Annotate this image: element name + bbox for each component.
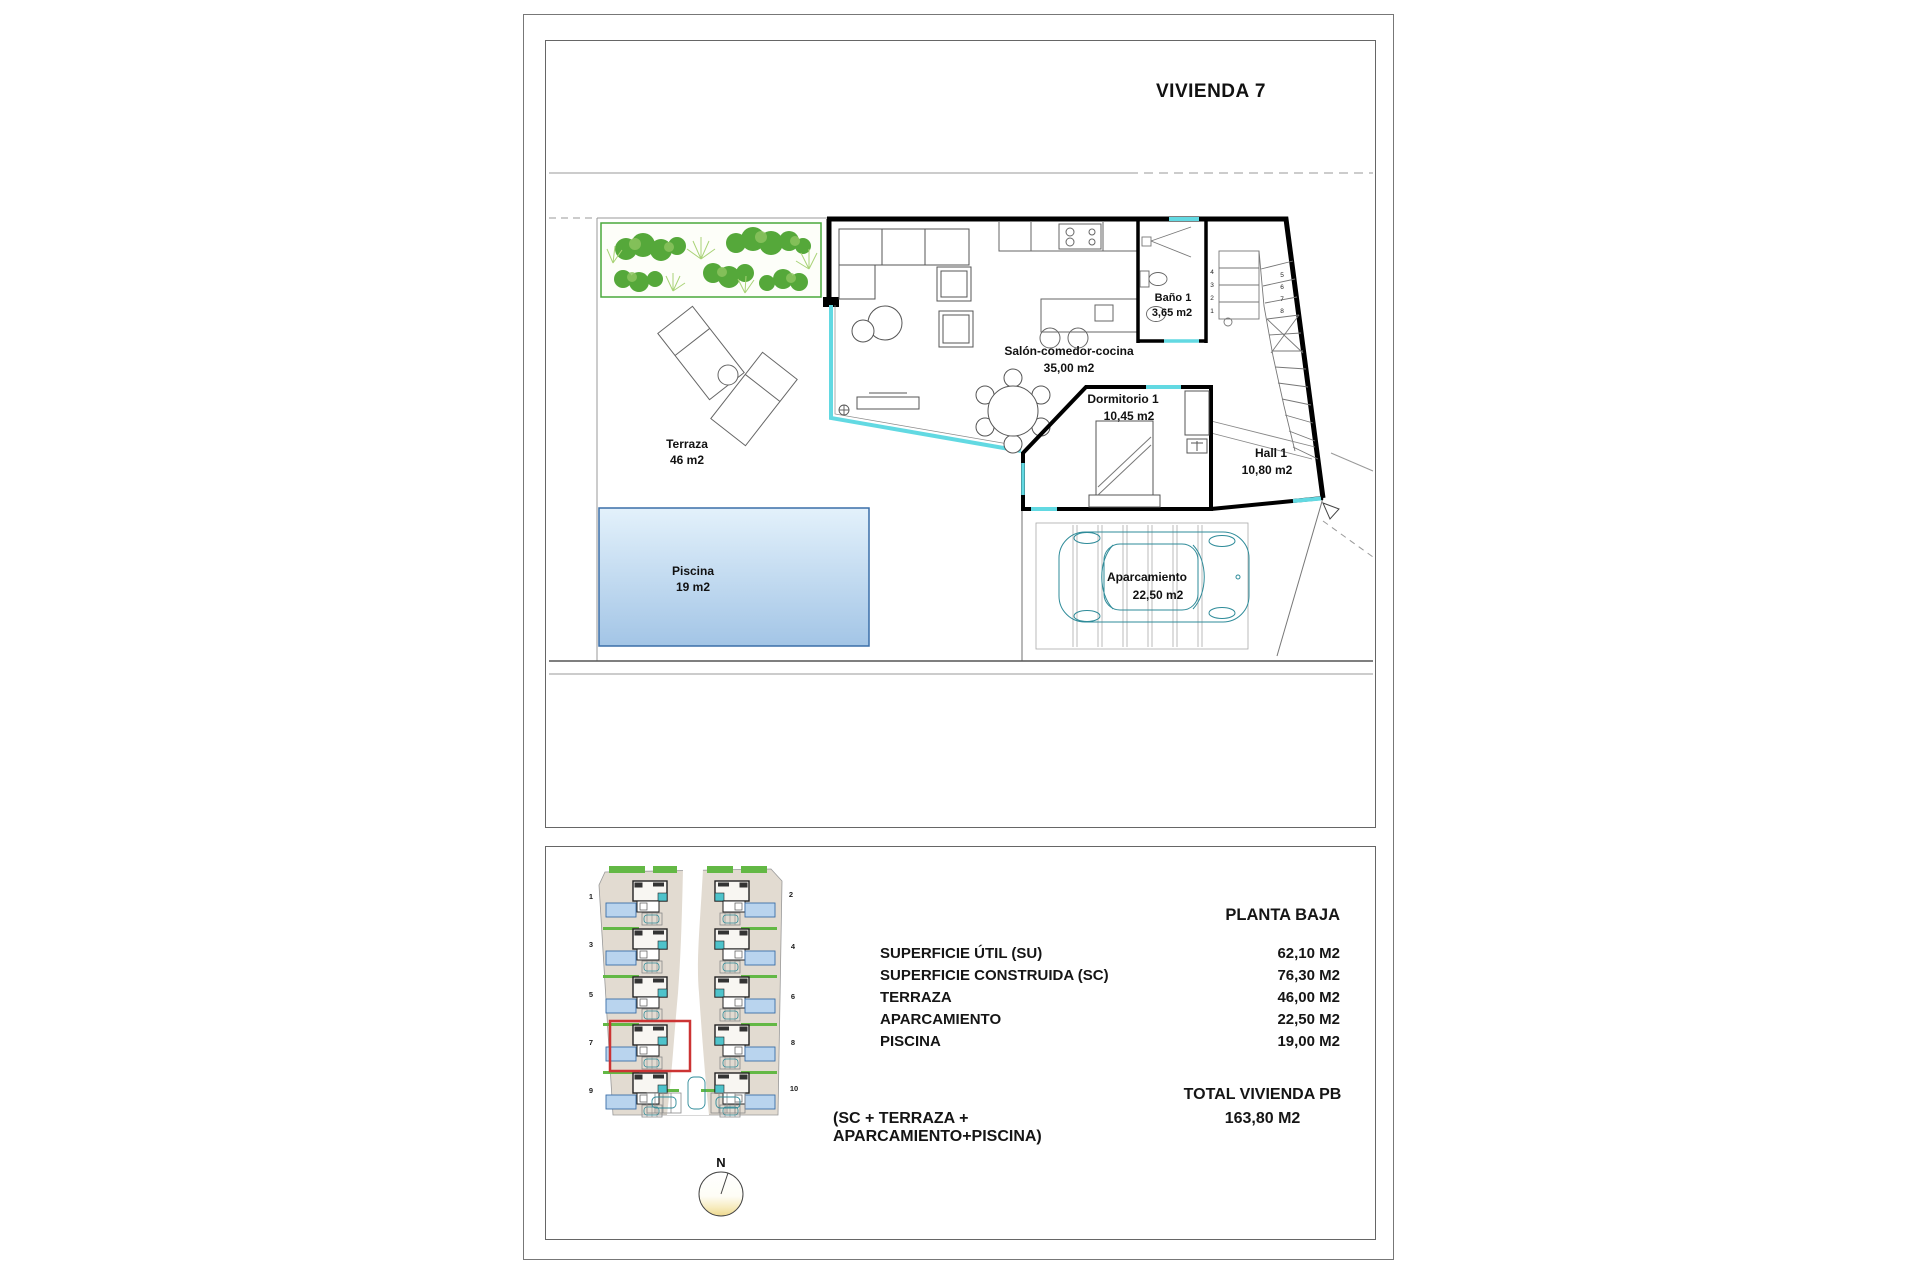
svg-text:4: 4: [791, 942, 796, 951]
svg-text:6: 6: [1280, 284, 1284, 291]
svg-text:4: 4: [1210, 269, 1214, 276]
site-plan: 1 2 3 4 5 6 7 8 9 10: [589, 866, 798, 1117]
row-label: SUPERFICIE CONSTRUIDA (SC): [880, 965, 1109, 987]
plan-sheet: VIVIENDA 7: [0, 0, 1920, 1280]
coffee-table-icon: [852, 306, 902, 342]
sink-icon: [1095, 305, 1113, 321]
floor-plan-panel: VIVIENDA 7: [545, 40, 1376, 828]
table-row: SUPERFICIE ÚTIL (SU) 62,10 M2: [880, 943, 1340, 965]
toilet-icon: [1140, 271, 1167, 287]
row-value: 22,50 M2: [1277, 1009, 1340, 1031]
svg-text:1: 1: [589, 892, 593, 901]
row-label: PISCINA: [880, 1031, 941, 1053]
row-label: APARCAMIENTO: [880, 1009, 1001, 1031]
wardrobe-icon: [1185, 391, 1209, 453]
area-summary-table: PLANTA BAJA SUPERFICIE ÚTIL (SU) 62,10 M…: [880, 906, 1340, 1053]
kitchen-counter: [999, 222, 1138, 251]
table-row: PISCINA 19,00 M2: [880, 1031, 1340, 1053]
terrace-table-icon: [718, 365, 738, 385]
row-value: 19,00 M2: [1277, 1031, 1340, 1053]
stair-step-numbers: 1 2 3 4 5 6 7 8: [1210, 269, 1284, 315]
svg-text:9: 9: [589, 1086, 593, 1095]
floor-plan-drawing: 1 2 3 4 5 6 7 8: [546, 41, 1375, 827]
shower-icon: [1142, 227, 1191, 257]
svg-text:8: 8: [1280, 308, 1284, 315]
svg-text:6: 6: [791, 992, 795, 1001]
hall-label: Hall 1: [1255, 446, 1287, 460]
hall-area: 10,80 m2: [1242, 463, 1293, 477]
terraza-area: 46 m2: [670, 453, 704, 467]
svg-text:8: 8: [791, 1038, 795, 1047]
north-compass-icon: N: [699, 1155, 743, 1216]
piscina-label: Piscina: [672, 564, 714, 578]
entrance-arrow-icon: [1323, 503, 1339, 519]
aparcamiento-label: Aparcamiento: [1107, 570, 1187, 584]
dormitorio-area: 10,45 m2: [1104, 409, 1155, 423]
svg-text:2: 2: [789, 890, 793, 899]
svg-text:7: 7: [1280, 296, 1284, 303]
table-row: TERRAZA 46,00 M2: [880, 987, 1340, 1009]
side-table-icon: [937, 267, 973, 347]
total-formula: (SC + TERRAZA + APARCAMIENTO+PISCINA): [833, 1110, 1173, 1146]
sun-lounger-icon: [658, 306, 797, 445]
total-block: TOTAL VIVIENDA PB 163,80 M2: [1180, 1086, 1345, 1128]
svg-text:10: 10: [790, 1084, 798, 1093]
bano-label: Baño 1: [1155, 292, 1192, 304]
bed-icon: [1089, 421, 1160, 507]
garden-planter: [601, 223, 821, 297]
row-label: TERRAZA: [880, 987, 952, 1009]
row-label: SUPERFICIE ÚTIL (SU): [880, 943, 1042, 965]
kitchen-island: [1040, 299, 1137, 348]
bano-area: 3,65 m2: [1152, 307, 1192, 319]
terraza-label: Terraza: [666, 437, 708, 451]
pool: [599, 508, 869, 646]
svg-text:7: 7: [589, 1038, 593, 1047]
salon-area: 35,00 m2: [1044, 361, 1095, 375]
entrance-door-glass: [1293, 499, 1321, 502]
dormitorio-label: Dormitorio 1: [1087, 392, 1159, 406]
row-value: 46,00 M2: [1277, 987, 1340, 1009]
driveway-paving: [1036, 523, 1248, 649]
piscina-area: 19 m2: [676, 580, 710, 594]
table-row: APARCAMIENTO 22,50 M2: [880, 1009, 1340, 1031]
salon-label: Salón-comedor-cocina: [1004, 344, 1134, 358]
svg-text:2: 2: [1210, 295, 1214, 302]
svg-text:1: 1: [1210, 308, 1214, 315]
summary-header: PLANTA BAJA: [880, 906, 1340, 925]
aparcamiento-area: 22,50 m2: [1133, 588, 1184, 602]
light-symbol-icon: [839, 405, 849, 415]
row-value: 62,10 M2: [1277, 943, 1340, 965]
total-value: 163,80 M2: [1180, 1110, 1345, 1128]
stove-icon: [1059, 224, 1101, 249]
svg-text:5: 5: [589, 990, 593, 999]
row-value: 76,30 M2: [1277, 965, 1340, 987]
north-label: N: [716, 1155, 725, 1170]
svg-text:3: 3: [589, 940, 593, 949]
console-icon: [857, 393, 919, 409]
svg-text:3: 3: [1210, 282, 1214, 289]
svg-text:5: 5: [1280, 272, 1284, 279]
table-row: SUPERFICIE CONSTRUIDA (SC) 76,30 M2: [880, 965, 1340, 987]
total-label: TOTAL VIVIENDA PB: [1180, 1086, 1345, 1104]
